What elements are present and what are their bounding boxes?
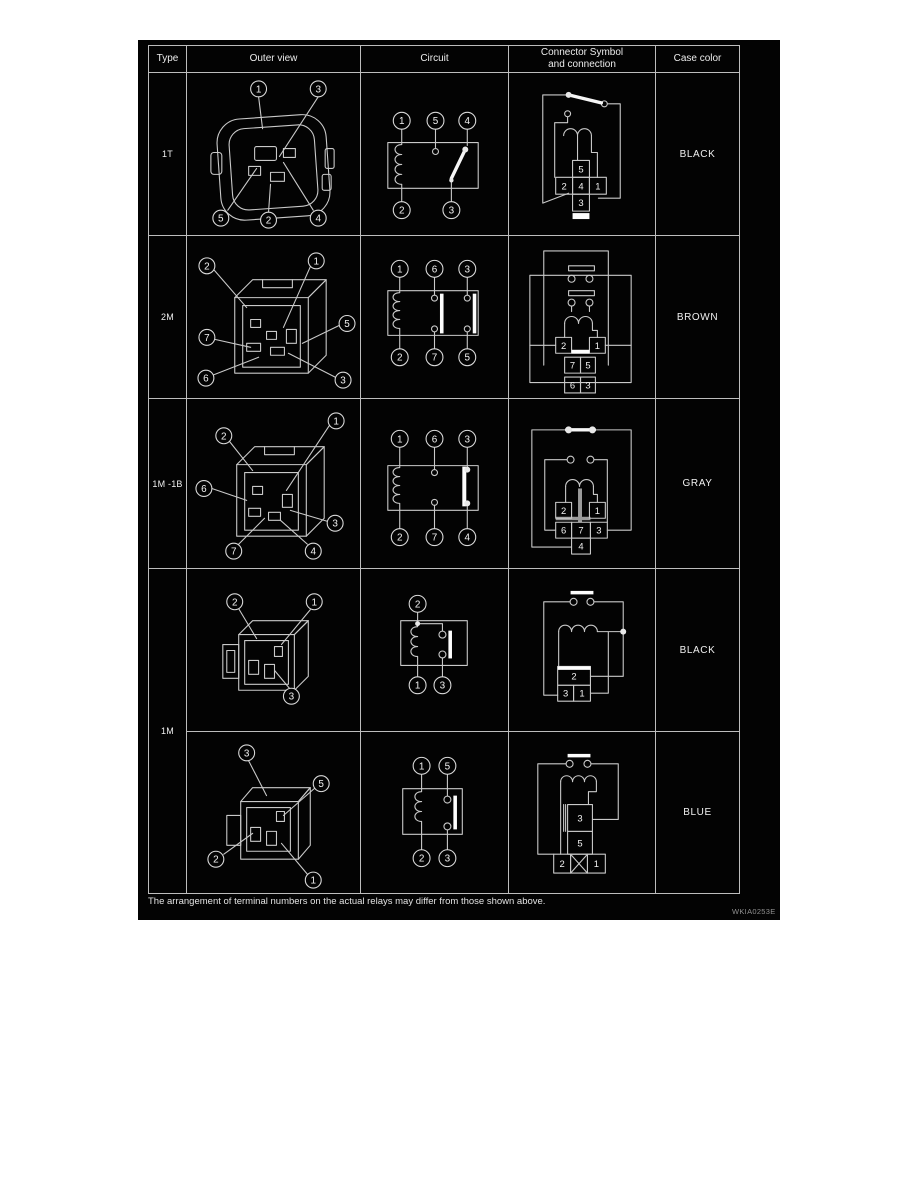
outer-view-1m-a-drawing: 2 1 3 (187, 569, 360, 731)
callout-number: 6 (196, 481, 212, 497)
relay-housing (223, 609, 310, 690)
svg-text:2: 2 (415, 599, 421, 610)
callout-number: 6 (198, 370, 214, 386)
grid-number: 2 (561, 180, 566, 191)
grid-number: 3 (577, 812, 582, 823)
svg-text:6: 6 (203, 374, 209, 385)
svg-text:3: 3 (332, 519, 338, 530)
callout-number: 3 (310, 81, 326, 97)
figure-code: WKIA0253E (732, 907, 776, 916)
relay-housing (211, 97, 334, 222)
svg-text:1: 1 (419, 761, 425, 772)
svg-text:3: 3 (340, 376, 346, 387)
svg-text:1: 1 (415, 681, 421, 692)
svg-text:5: 5 (218, 214, 224, 225)
callout-number: 2 (216, 428, 232, 444)
junction-dot (620, 629, 626, 635)
grid-number: 1 (594, 858, 599, 869)
svg-text:4: 4 (465, 533, 471, 544)
grid-number: 3 (585, 380, 590, 391)
svg-text:3: 3 (289, 692, 295, 703)
terminal-number: 3 (434, 677, 451, 694)
grid-number: 5 (578, 163, 583, 174)
case-color-label: BLACK (680, 645, 716, 656)
grid-number: 5 (585, 360, 590, 371)
grid-number: 4 (578, 541, 583, 552)
svg-text:3: 3 (244, 748, 250, 759)
connector-cell-1m-1b: 2 1 6 7 3 4 (509, 399, 656, 569)
svg-text:2: 2 (399, 206, 405, 217)
terminal-number: 1 (409, 677, 426, 694)
svg-text:1: 1 (313, 256, 319, 267)
callout-number: 4 (310, 210, 326, 226)
svg-text:3: 3 (315, 84, 321, 95)
circuit-1m-1b-drawing: 1 6 3 2 7 4 (361, 399, 508, 568)
svg-text:2: 2 (397, 533, 403, 544)
header-label: Outer view (250, 53, 298, 65)
circuit-cell-1m-a: 2 1 3 (361, 569, 509, 732)
grid-number: 5 (577, 837, 582, 848)
header-label-line2: and connection (548, 59, 616, 71)
col-header-outer-view: Outer view (187, 46, 361, 73)
callout-number: 3 (327, 515, 343, 531)
junction-dot (415, 621, 420, 626)
circuit-cell-2m: 1 6 3 2 7 5 (361, 236, 509, 399)
relay-housing (224, 761, 314, 874)
connector-symbol-1m-1b-drawing: 2 1 6 7 3 4 (509, 399, 655, 568)
svg-text:2: 2 (419, 854, 425, 865)
outer-view-2m-drawing: 2 1 7 5 6 3 (187, 236, 360, 398)
outer-view-1m-b-drawing: 3 5 2 1 (187, 732, 360, 893)
outer-view-cell-1m-b: 3 5 2 1 (187, 732, 361, 894)
callout-number: 2 (227, 594, 243, 610)
callout-number: 5 (313, 776, 329, 792)
case-color-label: BLUE (683, 807, 712, 818)
terminal-number: 5 (439, 757, 456, 774)
contact-dot (566, 92, 572, 98)
svg-text:1: 1 (397, 264, 403, 275)
case-color-cell-1t: BLACK (656, 73, 740, 236)
svg-text:3: 3 (465, 264, 471, 275)
circuit-wiring (388, 129, 478, 202)
callout-number: 1 (251, 81, 267, 97)
terminal-number: 2 (391, 349, 408, 366)
case-color-cell-1m-a: BLACK (656, 569, 740, 732)
outer-view-cell-1t: 1 3 5 2 4 (187, 73, 361, 236)
callout-number: 2 (199, 258, 215, 274)
svg-text:6: 6 (201, 484, 207, 495)
case-color-label: BLACK (680, 149, 716, 160)
grid-number: 2 (560, 858, 565, 869)
svg-text:7: 7 (432, 353, 438, 364)
terminal-number: 2 (413, 850, 430, 867)
connector-cell-1m-a: 2 3 1 (509, 569, 656, 732)
svg-text:5: 5 (344, 319, 350, 330)
connector-tab (573, 213, 590, 219)
footnote-text: The arrangement of terminal numbers on t… (148, 896, 688, 907)
svg-text:1: 1 (256, 84, 262, 95)
relay-housing (213, 267, 339, 377)
outer-view-cell-2m: 2 1 7 5 6 3 (187, 236, 361, 399)
grid-number: 6 (570, 380, 575, 391)
svg-text:5: 5 (445, 761, 451, 772)
contact-dot (449, 178, 453, 182)
terminal-number: 4 (459, 112, 476, 129)
terminal-number: 2 (391, 529, 408, 546)
contact-top-bar (571, 591, 594, 594)
connector-symbol-1t-drawing: 5 2 4 1 3 (509, 73, 655, 235)
grid-number: 7 (578, 525, 583, 536)
circuit-wiring (388, 277, 478, 349)
contact-bar-closed (462, 467, 466, 507)
outer-view-1t-drawing: 1 3 5 2 4 (187, 73, 360, 235)
case-color-cell-1m-1b: GRAY (656, 399, 740, 569)
grid-number: 1 (595, 340, 600, 351)
callout-number: 3 (283, 688, 299, 704)
svg-text:4: 4 (465, 116, 471, 127)
terminal-number: 5 (459, 349, 476, 366)
connector-symbol-2m-drawing: 2 1 7 5 6 3 (509, 236, 655, 398)
svg-text:7: 7 (204, 333, 210, 344)
svg-text:1: 1 (333, 416, 339, 427)
callout-number: 4 (305, 543, 321, 559)
circuit-1m-a-drawing: 2 1 3 (361, 569, 508, 731)
grid-number: 4 (578, 180, 583, 191)
circuit-cell-1m-b: 1 5 2 3 (361, 732, 509, 894)
circuit-2m-drawing: 1 6 3 2 7 5 (361, 236, 508, 398)
connector-symbol-1m-a-drawing: 2 3 1 (509, 569, 655, 731)
terminal-number: 5 (427, 112, 444, 129)
svg-text:3: 3 (449, 206, 455, 217)
svg-text:1: 1 (311, 597, 317, 608)
terminal-number: 3 (459, 260, 476, 277)
svg-text:2: 2 (221, 431, 227, 442)
col-header-circuit: Circuit (361, 46, 509, 73)
svg-text:2: 2 (232, 597, 238, 608)
circuit-1t-drawing: 1 5 4 2 3 (361, 73, 508, 235)
contact-dot (565, 426, 572, 433)
svg-text:2: 2 (213, 855, 219, 866)
terminal-number: 1 (391, 260, 408, 277)
circuit-cell-1m-1b: 1 6 3 2 7 4 (361, 399, 509, 569)
svg-text:2: 2 (266, 216, 272, 227)
svg-text:3: 3 (440, 681, 446, 692)
col-header-connector: Connector Symbol and connection (509, 46, 656, 73)
relay-table: Type Outer view Circuit Connector Symbol… (148, 45, 740, 894)
header-label: Case color (674, 53, 722, 65)
type-label: 2M (161, 312, 174, 322)
type-label: 1T (162, 149, 173, 159)
svg-text:7: 7 (231, 547, 237, 558)
type-cell-1m: 1M (149, 569, 187, 894)
connector-wiring (544, 598, 623, 695)
callout-number: 7 (226, 543, 242, 559)
type-label: 1M (161, 726, 174, 736)
svg-text:5: 5 (318, 779, 324, 790)
contact-bar (440, 294, 444, 334)
connector-cell-1t: 5 2 4 1 3 (509, 73, 656, 236)
contact-bar (473, 294, 477, 334)
outer-view-cell-1m-a: 2 1 3 (187, 569, 361, 732)
terminal-number: 1 (391, 430, 408, 447)
contact-top-bar (568, 754, 591, 757)
type-label: 1M -1B (152, 479, 182, 489)
contact-dot (462, 147, 468, 153)
terminal-number: 6 (426, 260, 443, 277)
svg-text:1: 1 (397, 434, 403, 445)
callout-number: 5 (213, 210, 229, 226)
switch-blade (451, 150, 465, 179)
terminal-number: 3 (443, 202, 460, 219)
callout-number: 1 (306, 594, 322, 610)
callout-number: 5 (339, 316, 355, 332)
col-header-case-color: Case color (656, 46, 740, 73)
svg-text:3: 3 (465, 434, 471, 445)
grid-number: 3 (563, 688, 568, 699)
contact-dot (464, 467, 470, 473)
type-cell-1m-1b: 1M -1B (149, 399, 187, 569)
contact-bar (453, 796, 457, 830)
contact-dot (464, 500, 470, 506)
circuit-1m-b-drawing: 1 5 2 3 (361, 732, 508, 893)
circuit-wiring (401, 612, 468, 677)
grid-number: 1 (595, 180, 600, 191)
connector-tab (572, 350, 590, 354)
terminal-number: 2 (409, 595, 426, 612)
svg-text:1: 1 (399, 116, 405, 127)
callout-number: 1 (305, 872, 321, 888)
header-label: Circuit (420, 53, 448, 65)
svg-text:5: 5 (433, 116, 439, 127)
switch-blade (569, 95, 602, 103)
outer-view-1m-1b-drawing: 2 1 6 3 7 4 (187, 399, 360, 568)
grid-number: 2 (571, 670, 576, 681)
svg-text:5: 5 (465, 353, 471, 364)
svg-text:2: 2 (204, 261, 210, 272)
outer-view-cell-1m-1b: 2 1 6 3 7 4 (187, 399, 361, 569)
terminal-number: 3 (439, 850, 456, 867)
manual-page: Type Outer view Circuit Connector Symbol… (0, 0, 918, 1188)
type-cell-2m: 2M (149, 236, 187, 399)
connector-symbol-1m-b-drawing: 3 5 2 1 (509, 732, 655, 893)
col-header-type: Type (149, 46, 187, 73)
callout-number: 3 (239, 745, 255, 761)
terminal-number: 1 (393, 112, 410, 129)
case-color-cell-2m: BROWN (656, 236, 740, 399)
svg-text:3: 3 (445, 854, 451, 865)
callout-number: 1 (308, 253, 324, 269)
circuit-cell-1t: 1 5 4 2 3 (361, 73, 509, 236)
callout-number: 2 (208, 851, 224, 867)
header-label-line1: Connector Symbol (541, 47, 623, 59)
terminal-number: 3 (459, 430, 476, 447)
case-color-label: BROWN (677, 312, 718, 323)
grid-number: 7 (570, 360, 575, 371)
callout-number: 3 (335, 372, 351, 388)
figure-background: Type Outer view Circuit Connector Symbol… (138, 40, 780, 920)
svg-text:4: 4 (310, 547, 316, 558)
svg-text:4: 4 (315, 214, 321, 225)
callout-number: 7 (199, 329, 215, 345)
contact-dot (589, 426, 596, 433)
grid-number: 3 (578, 197, 583, 208)
case-color-label: GRAY (683, 478, 713, 489)
terminal-number: 7 (426, 529, 443, 546)
terminal-number: 4 (459, 529, 476, 546)
header-label: Type (157, 53, 179, 65)
callout-number: 2 (261, 212, 277, 228)
grid-number: 2 (561, 505, 566, 516)
terminal-number: 6 (426, 430, 443, 447)
svg-text:2: 2 (397, 353, 403, 364)
grid-number: 3 (596, 525, 601, 536)
callout-number: 1 (328, 413, 344, 429)
connector-cell-2m: 2 1 7 5 6 3 (509, 236, 656, 399)
terminal-number: 1 (413, 757, 430, 774)
svg-text:6: 6 (432, 264, 438, 275)
grid-number: 2 (561, 340, 566, 351)
grid-number: 6 (561, 525, 566, 536)
type-cell-1t: 1T (149, 73, 187, 236)
svg-text:6: 6 (432, 434, 438, 445)
svg-text:7: 7 (432, 533, 438, 544)
relay-housing (212, 426, 329, 544)
contact-bar (448, 631, 452, 659)
terminal-number: 2 (393, 202, 410, 219)
connector-cell-1m-b: 3 5 2 1 (509, 732, 656, 894)
grid-number: 1 (579, 688, 584, 699)
case-color-cell-1m-b: BLUE (656, 732, 740, 894)
terminal-number: 7 (426, 349, 443, 366)
svg-text:1: 1 (310, 876, 316, 887)
grid-number: 1 (595, 505, 600, 516)
